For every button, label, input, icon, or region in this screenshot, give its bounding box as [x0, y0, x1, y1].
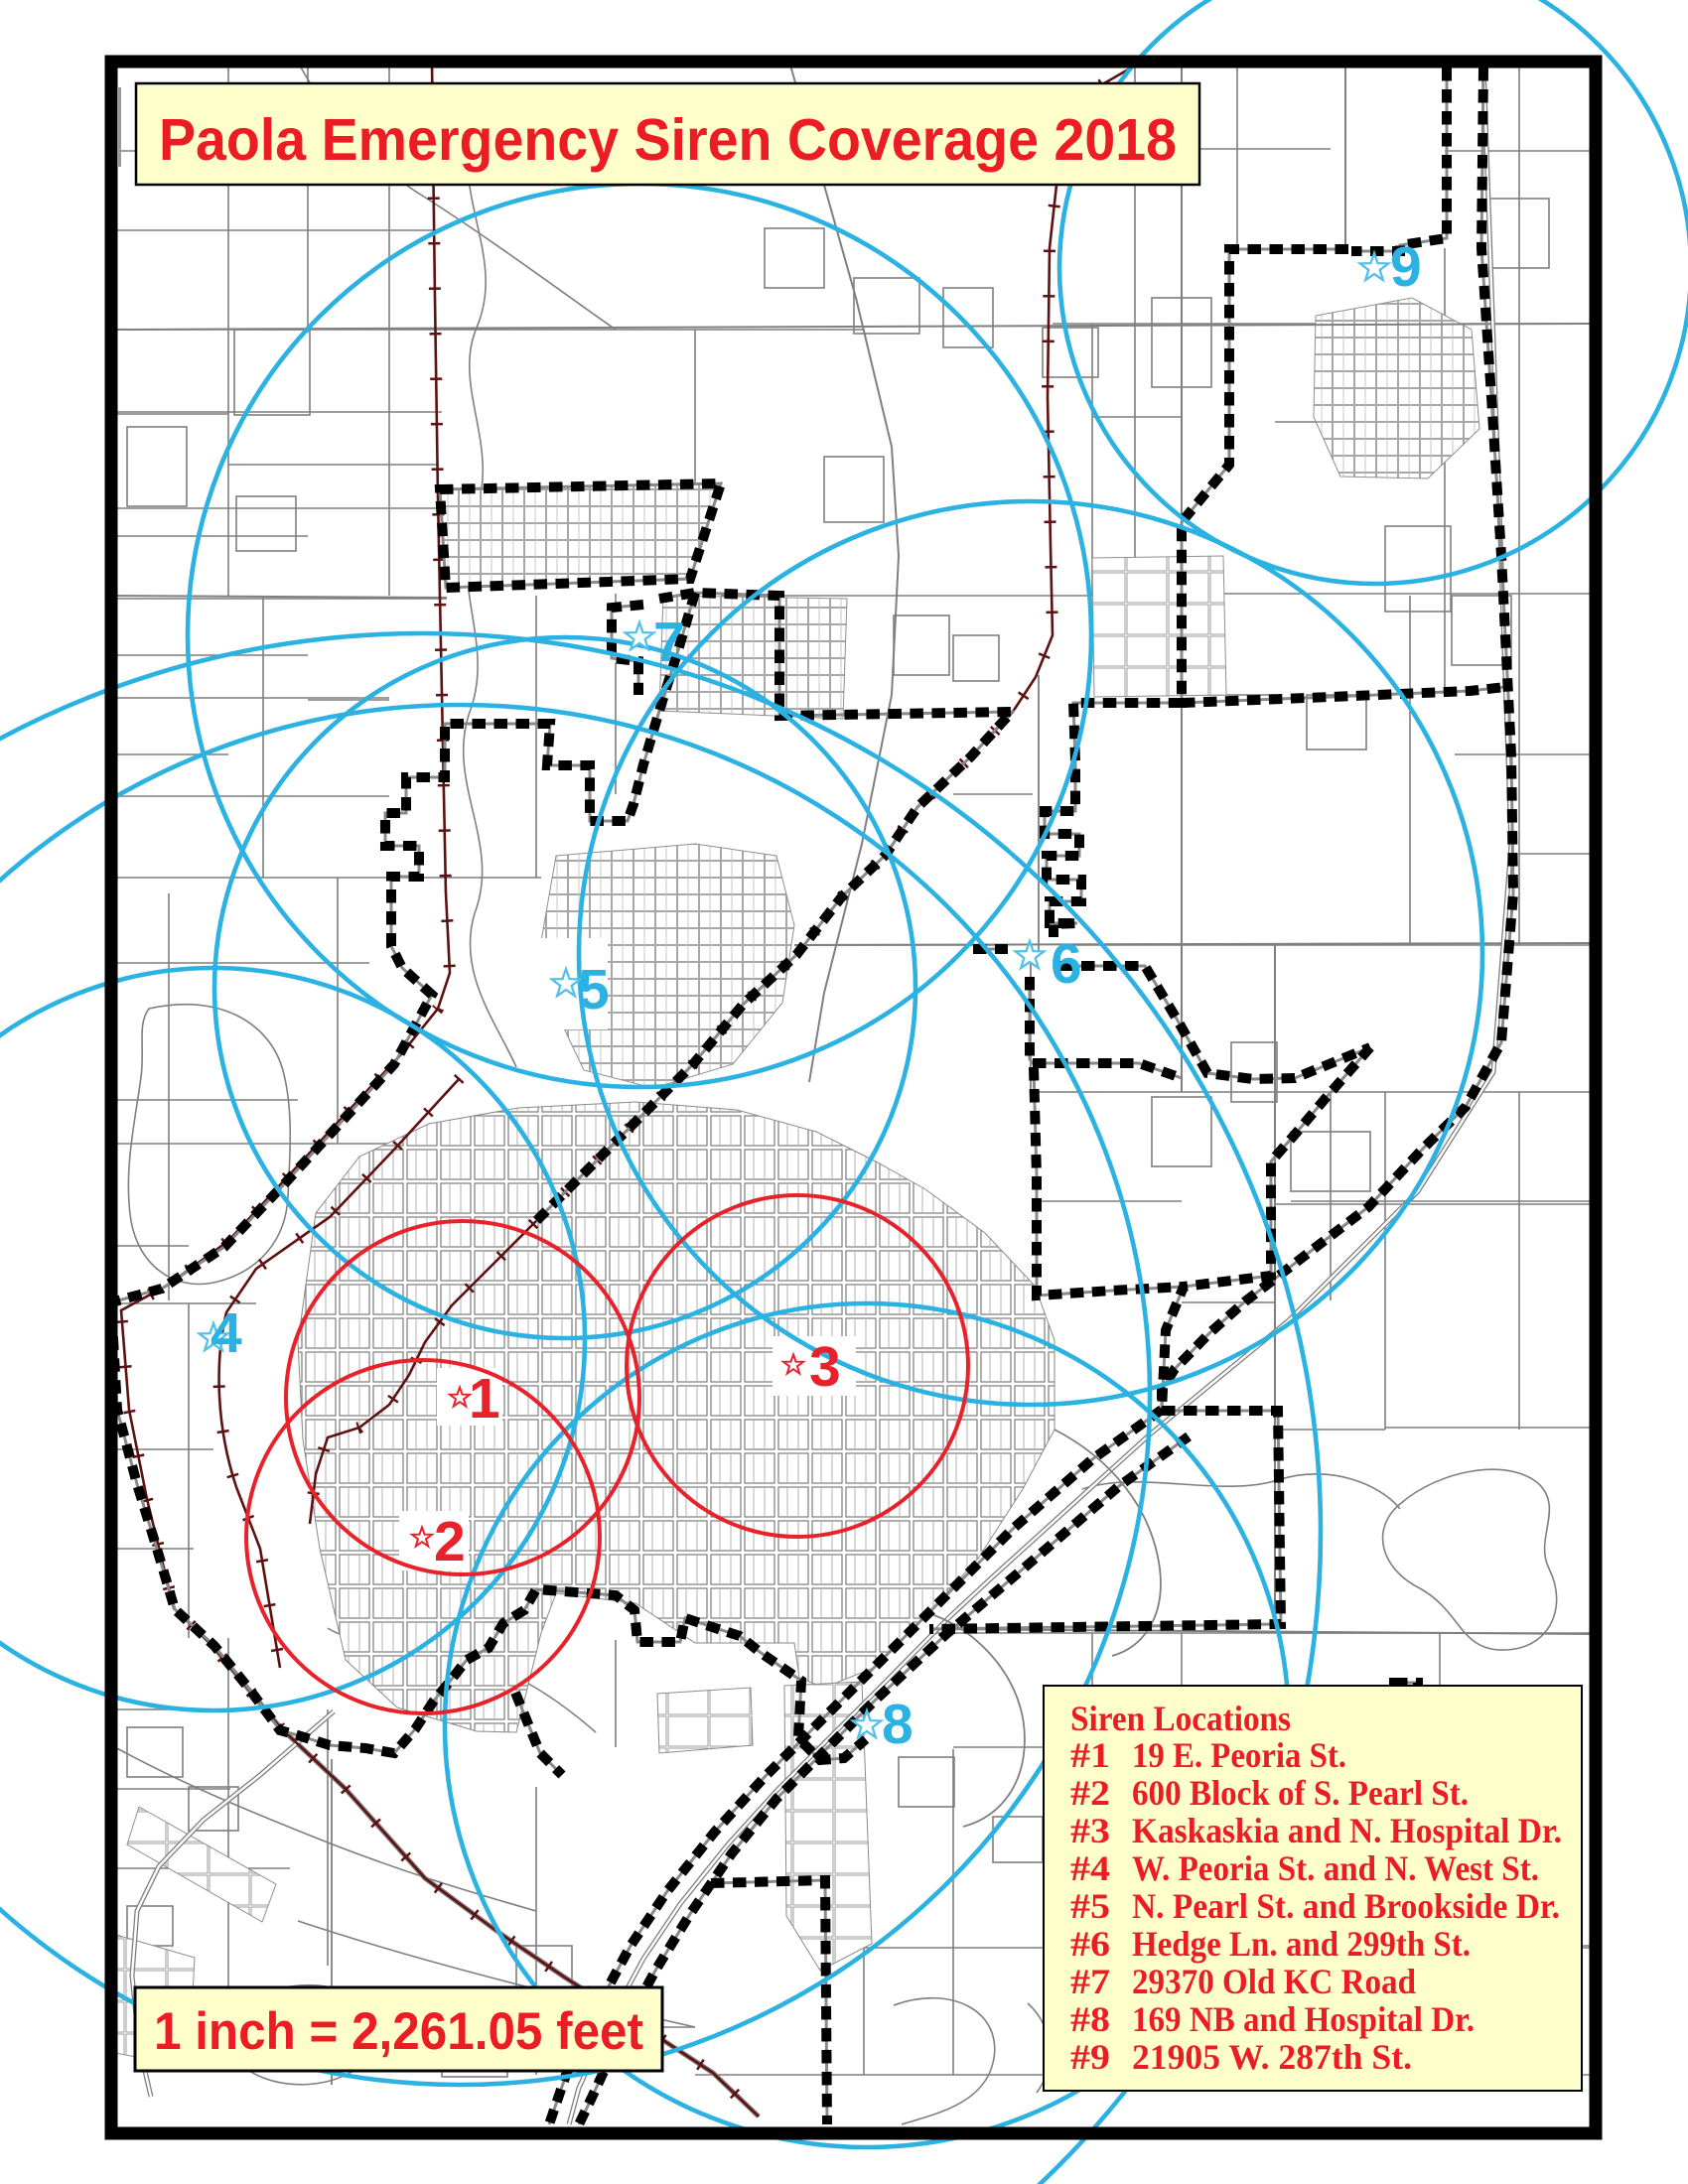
svg-text:W. Peoria St. and N. West St.: W. Peoria St. and N. West St.	[1132, 1848, 1539, 1888]
svg-text:#8: #8	[1070, 1999, 1110, 2039]
svg-text:4: 4	[211, 1301, 242, 1365]
svg-text:Siren Locations: Siren Locations	[1070, 1699, 1291, 1738]
svg-text:5: 5	[578, 958, 610, 1022]
svg-text:1 inch = 2,261.05 feet: 1 inch = 2,261.05 feet	[154, 2002, 643, 2061]
svg-text:169 NB and Hospital Dr.: 169 NB and Hospital Dr.	[1132, 1999, 1475, 2039]
svg-text:#4: #4	[1070, 1848, 1110, 1888]
svg-text:7: 7	[653, 611, 685, 674]
svg-text:3: 3	[809, 1335, 841, 1399]
svg-text:19 E. Peoria St.: 19 E. Peoria St.	[1132, 1735, 1346, 1775]
svg-text:8: 8	[882, 1693, 914, 1756]
svg-text:#6: #6	[1070, 1924, 1110, 1964]
svg-text:2: 2	[434, 1510, 466, 1573]
svg-text:Hedge Ln. and 299th St.: Hedge Ln. and 299th St.	[1132, 1924, 1471, 1964]
svg-text:29370 Old KC Road: 29370 Old KC Road	[1132, 1962, 1416, 2001]
svg-text:6: 6	[1051, 932, 1082, 996]
svg-text:Kaskaskia and N. Hospital Dr.: Kaskaskia and N. Hospital Dr.	[1132, 1811, 1562, 1850]
svg-text:21905 W. 287th St.: 21905 W. 287th St.	[1132, 2037, 1412, 2077]
svg-text:#5: #5	[1070, 1886, 1110, 1926]
svg-text:9: 9	[1390, 235, 1422, 299]
svg-text:#3: #3	[1070, 1811, 1110, 1850]
svg-text:600 Block of S. Pearl St.: 600 Block of S. Pearl St.	[1132, 1773, 1469, 1813]
svg-text:N. Pearl St. and Brookside Dr.: N. Pearl St. and Brookside Dr.	[1132, 1886, 1560, 1926]
svg-text:#9: #9	[1070, 2037, 1110, 2077]
svg-text:#1: #1	[1070, 1735, 1110, 1775]
svg-text:Paola Emergency Siren Coverage: Paola Emergency Siren Coverage 2018	[159, 107, 1177, 173]
svg-text:#7: #7	[1070, 1962, 1110, 2001]
svg-text:1: 1	[469, 1367, 500, 1431]
svg-text:#2: #2	[1070, 1773, 1110, 1813]
